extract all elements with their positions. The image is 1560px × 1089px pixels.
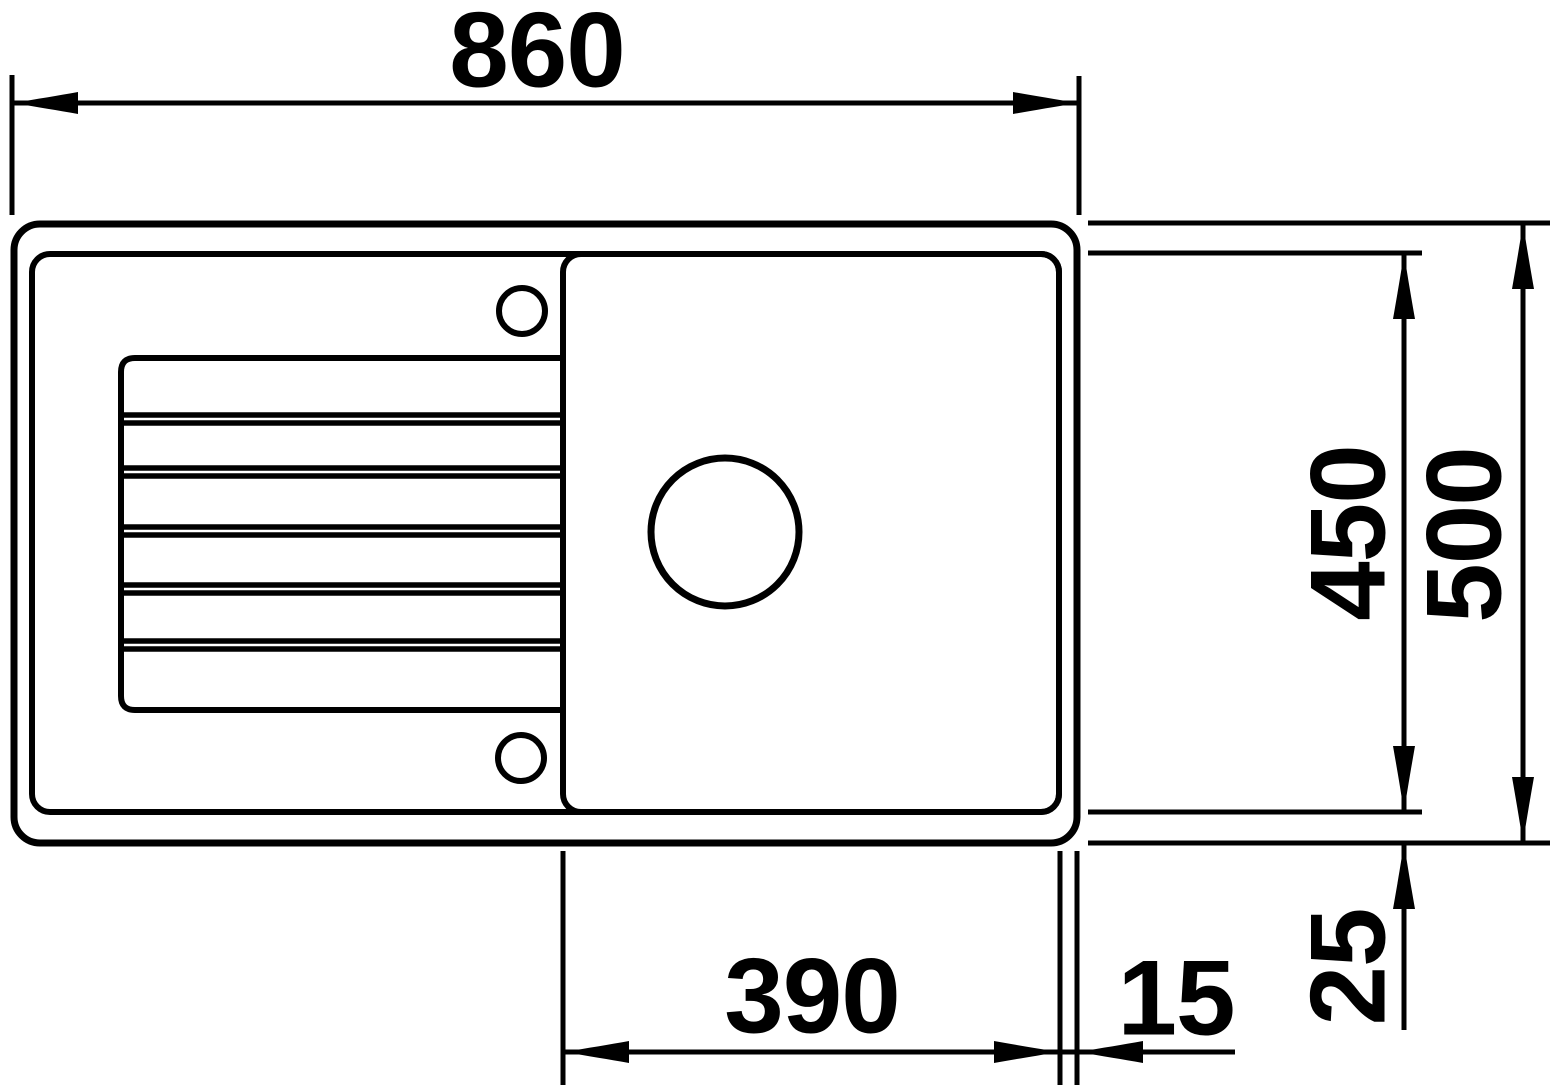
arrow-450-top — [1393, 253, 1415, 319]
arrow-860-left — [12, 92, 78, 114]
sink-bowl — [563, 254, 1059, 812]
sink-body — [14, 224, 1077, 843]
arrow-390-left — [563, 1041, 629, 1063]
dim-label-overall-depth: 500 — [1411, 447, 1518, 623]
drainboard-ridges — [121, 415, 563, 649]
arrow-500-top — [1512, 223, 1534, 289]
dim-label-overall-width: 860 — [449, 0, 625, 104]
arrow-25-up — [1393, 843, 1415, 909]
dim-label-rim-side: 15 — [1117, 945, 1234, 1052]
technical-drawing-canvas: 860 450 500 25 390 15 — [0, 0, 1560, 1089]
dim-label-bowl-width: 390 — [724, 943, 900, 1050]
arrow-390-right — [994, 1041, 1060, 1063]
tap-hole-bottom — [498, 735, 544, 781]
tap-hole-top — [499, 288, 545, 334]
arrow-860-right — [1013, 92, 1079, 114]
dim-label-bowl-depth: 450 — [1295, 445, 1402, 621]
drain-hole — [651, 458, 799, 606]
arrow-450-bottom — [1393, 746, 1415, 812]
arrow-500-bottom — [1512, 777, 1534, 843]
dim-label-rim-bottom: 25 — [1295, 908, 1402, 1025]
